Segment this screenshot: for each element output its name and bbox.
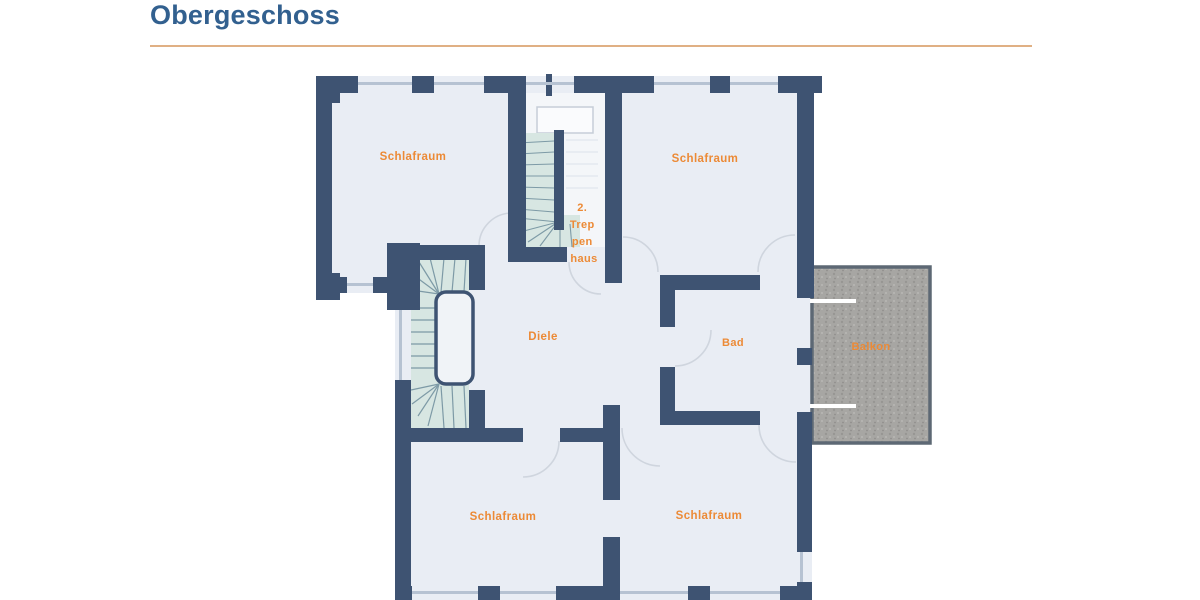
balcony-threshold xyxy=(810,299,856,303)
room-label-hallway: Diele xyxy=(528,331,558,343)
floor-plan-page: Obergeschoss xyxy=(0,0,1200,600)
stair-rail xyxy=(554,130,564,230)
balcony xyxy=(810,267,930,443)
floor-plan: Schlafraum Schlafraum Diele Bad Balkon S… xyxy=(0,0,1200,600)
room-label-bathroom: Bad xyxy=(722,337,744,349)
room-label-bedroom-bottom-left: Schlafraum xyxy=(470,511,537,523)
room-label-balcony: Balkon xyxy=(851,341,890,353)
room-label-bedroom-top-right: Schlafraum xyxy=(672,153,739,165)
main-staircase xyxy=(411,258,473,428)
room-label-bedroom-top-left: Schlafraum xyxy=(380,151,447,163)
room-label-bedroom-bottom-right: Schlafraum xyxy=(676,510,743,522)
balcony-threshold xyxy=(810,404,856,408)
stair-void xyxy=(436,292,473,384)
